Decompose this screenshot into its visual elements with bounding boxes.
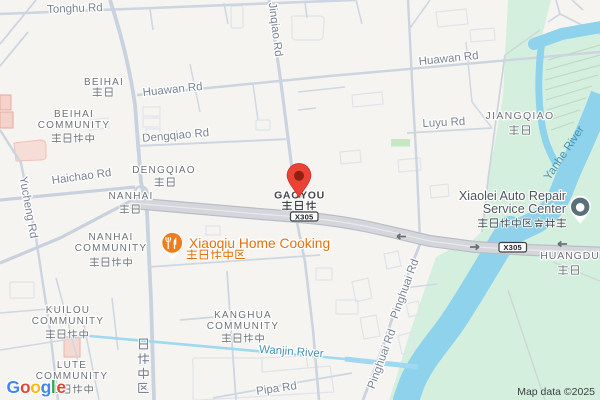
svg-text:KANGHUA: KANGHUA xyxy=(214,310,272,321)
svg-text:HUANGDU: HUANGDU xyxy=(540,250,599,262)
svg-text:COMMUNITY: COMMUNITY xyxy=(207,321,279,332)
svg-text:COMMUNITY: COMMUNITY xyxy=(32,316,104,327)
svg-text:Luyu Rd: Luyu Rd xyxy=(422,116,465,130)
svg-text:Xiaolei Auto Repair: Xiaolei Auto Repair xyxy=(459,189,566,203)
svg-text:LUTE: LUTE xyxy=(57,360,87,371)
svg-text:X305: X305 xyxy=(295,212,314,221)
svg-text:o: o xyxy=(30,377,41,397)
svg-text:l: l xyxy=(51,377,56,397)
svg-text:X305: X305 xyxy=(503,243,522,252)
svg-text:Map data ©2025: Map data ©2025 xyxy=(517,386,595,398)
svg-text:JIANGQIAO: JIANGQIAO xyxy=(486,110,555,122)
svg-text:COMMUNITY: COMMUNITY xyxy=(38,120,110,131)
svg-text:BEIHAI: BEIHAI xyxy=(84,77,124,88)
svg-text:Tonghu Rd: Tonghu Rd xyxy=(47,2,103,16)
svg-text:KUILOU: KUILOU xyxy=(46,305,90,316)
svg-text:g: g xyxy=(41,377,52,397)
svg-text:Xiaoqiu Home Cooking: Xiaoqiu Home Cooking xyxy=(189,236,330,251)
svg-text:e: e xyxy=(56,377,66,397)
svg-text:NANHAI: NANHAI xyxy=(109,191,154,202)
svg-text:G: G xyxy=(7,377,21,397)
svg-text:Service Center: Service Center xyxy=(483,202,566,216)
svg-text:NANHAI: NANHAI xyxy=(89,232,134,243)
svg-text:COMMUNITY: COMMUNITY xyxy=(75,243,147,254)
svg-text:BEIHAI: BEIHAI xyxy=(54,109,94,120)
svg-text:DENGQIAO: DENGQIAO xyxy=(132,165,196,176)
svg-text:o: o xyxy=(20,377,31,397)
